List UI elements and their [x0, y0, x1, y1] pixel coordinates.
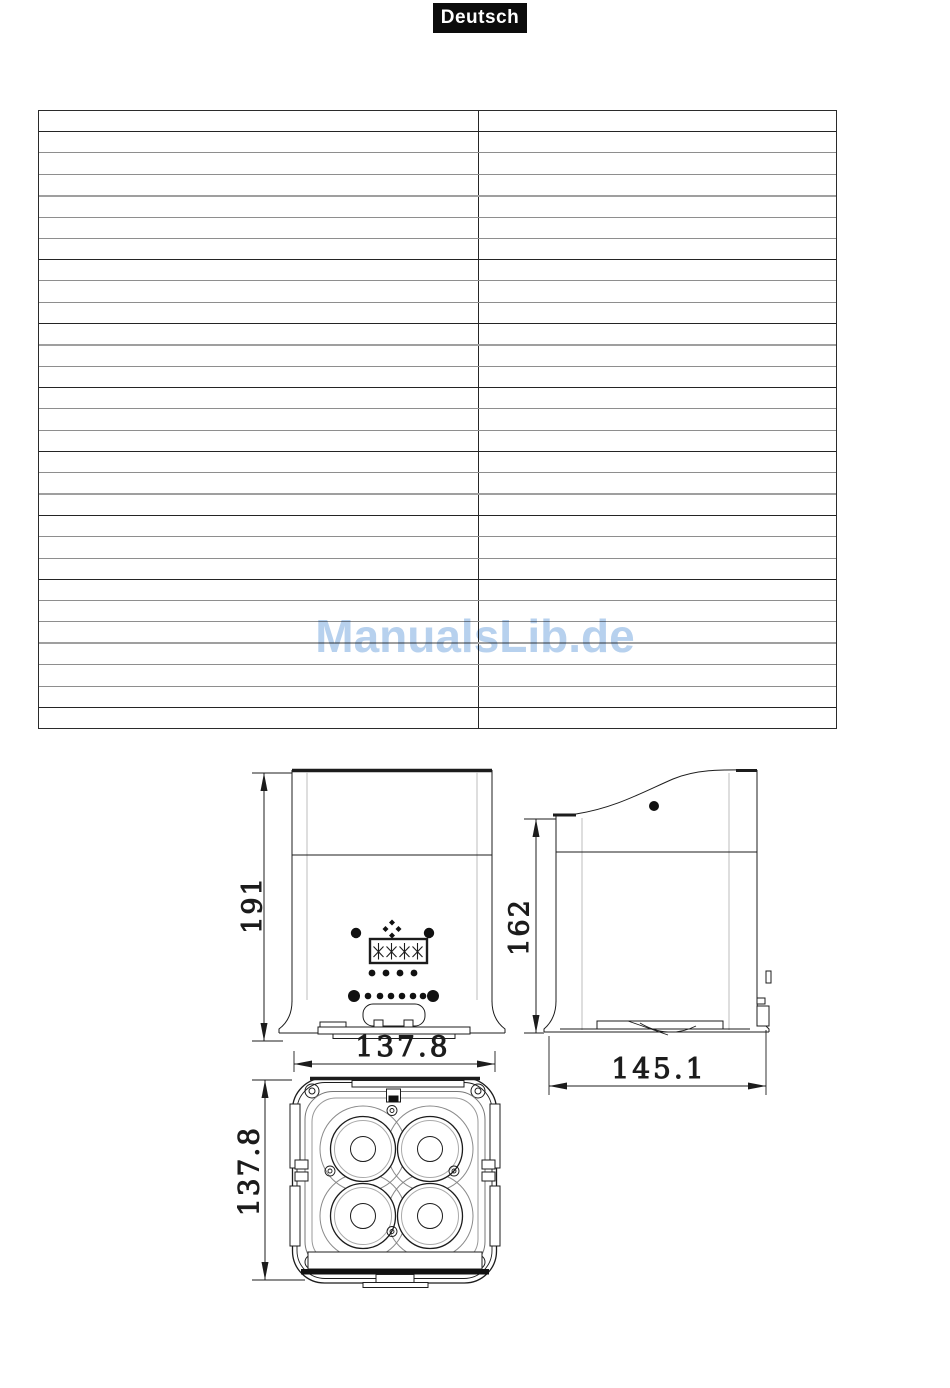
bottom-height-label: 137.8 — [233, 1126, 266, 1216]
width-label: 137.8 — [355, 1030, 450, 1063]
table-cell — [39, 260, 479, 280]
table-cell — [479, 303, 836, 323]
table-row — [39, 174, 836, 195]
table-cell — [479, 409, 836, 429]
table-cell — [479, 367, 836, 387]
table-row — [39, 472, 836, 493]
table-row — [39, 515, 836, 536]
table-cell — [479, 239, 836, 259]
manual-page: Deutsch ManualsLib.de — [0, 0, 950, 1388]
table-cell — [479, 197, 836, 217]
watermark: ManualsLib.de — [283, 609, 667, 663]
table-row — [39, 323, 836, 344]
table-row — [39, 558, 836, 579]
table-cell — [39, 197, 479, 217]
table-cell — [39, 516, 479, 536]
table-cell — [479, 495, 836, 515]
bottom-view-drawing — [290, 1078, 500, 1288]
table-cell — [479, 708, 836, 728]
table-cell — [39, 580, 479, 600]
table-cell — [39, 218, 479, 238]
table-cell — [39, 409, 479, 429]
table-cell — [39, 687, 479, 707]
table-cell — [479, 111, 836, 131]
table-cell — [39, 175, 479, 195]
table-cell — [39, 559, 479, 579]
table-cell — [39, 324, 479, 344]
table-row — [39, 259, 836, 280]
led-display — [370, 939, 427, 963]
table-cell — [479, 324, 836, 344]
side-brackets — [290, 1104, 500, 1246]
table-row — [39, 131, 836, 152]
table-row — [39, 451, 836, 472]
table-cell — [479, 346, 836, 366]
table-cell — [479, 175, 836, 195]
table-cell — [479, 388, 836, 408]
table-row — [39, 686, 836, 707]
table-cell — [39, 153, 479, 173]
table-row — [39, 430, 836, 451]
table-cell — [479, 452, 836, 472]
table-row — [39, 493, 836, 515]
table-row — [39, 707, 836, 728]
front-view-drawing — [279, 770, 505, 1039]
table-row — [39, 579, 836, 600]
table-cell — [479, 431, 836, 451]
table-cell — [479, 665, 836, 685]
table-row — [39, 408, 836, 429]
dimension-drawings: 191 137.8 162 145.1 137.8 — [228, 752, 794, 1308]
table-cell — [39, 537, 479, 557]
table-row — [39, 664, 836, 685]
table-cell — [479, 260, 836, 280]
side-view-drawing — [544, 770, 771, 1035]
table-row — [39, 217, 836, 238]
table-cell — [39, 388, 479, 408]
table-cell — [39, 303, 479, 323]
table-cell — [39, 452, 479, 472]
side-height-label: 162 — [505, 898, 536, 956]
table-cell — [479, 687, 836, 707]
table-cell — [479, 281, 836, 301]
table-cell — [479, 153, 836, 173]
table-cell — [479, 537, 836, 557]
menu-buttons-cluster — [351, 920, 434, 939]
table-cell — [39, 281, 479, 301]
table-cell — [39, 431, 479, 451]
side-depth-label: 145.1 — [611, 1052, 706, 1085]
table-cell — [39, 239, 479, 259]
front-height-label: 191 — [238, 876, 269, 934]
table-row — [39, 111, 836, 131]
table-cell — [39, 473, 479, 493]
table-cell — [479, 559, 836, 579]
table-cell — [479, 218, 836, 238]
control-buttons-row — [348, 970, 439, 1002]
table-cell — [479, 473, 836, 493]
table-row — [39, 195, 836, 217]
table-row — [39, 536, 836, 557]
table-row — [39, 302, 836, 323]
table-row — [39, 280, 836, 301]
table-cell — [479, 516, 836, 536]
table-cell — [479, 132, 836, 152]
table-row — [39, 238, 836, 259]
table-row — [39, 387, 836, 408]
language-badge: Deutsch — [433, 3, 527, 33]
table-cell — [39, 346, 479, 366]
table-row — [39, 344, 836, 366]
table-cell — [39, 367, 479, 387]
table-cell — [39, 132, 479, 152]
table-cell — [479, 580, 836, 600]
table-cell — [39, 708, 479, 728]
table-row — [39, 152, 836, 173]
table-cell — [39, 111, 479, 131]
table-row — [39, 366, 836, 387]
table-cell — [39, 665, 479, 685]
table-cell — [39, 495, 479, 515]
